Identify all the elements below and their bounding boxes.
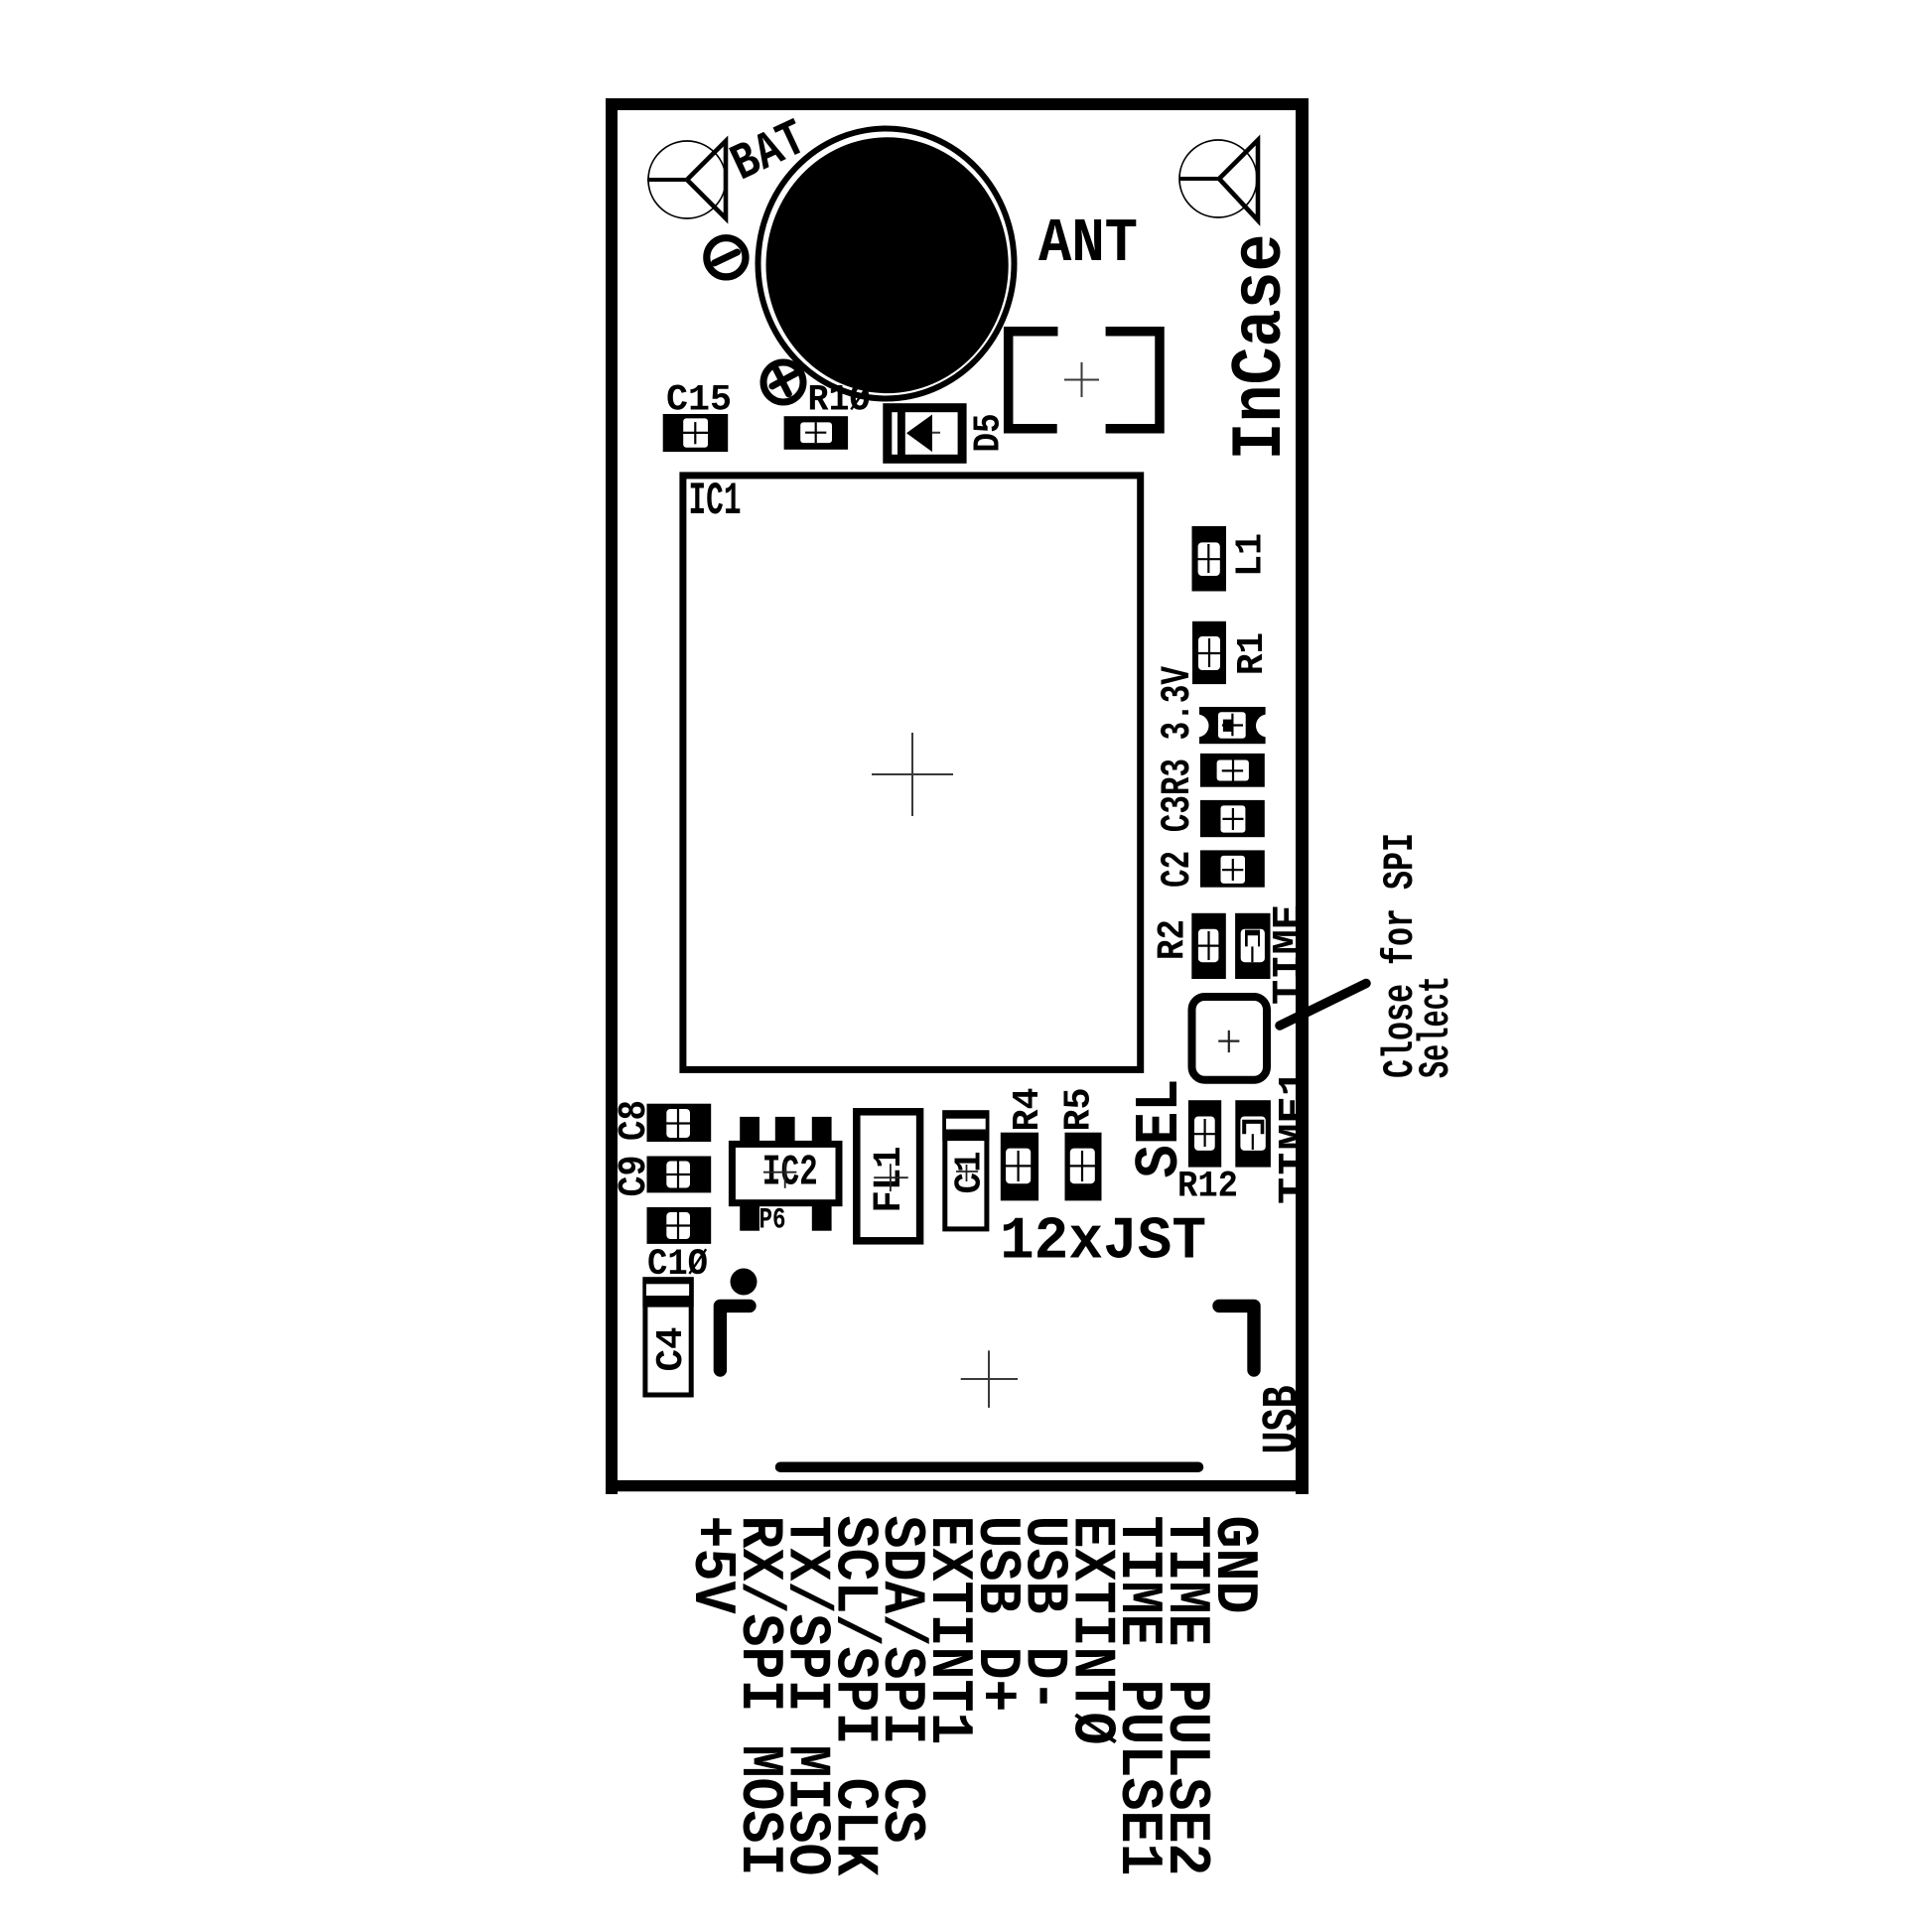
svg-text:L1: L1 (1230, 533, 1273, 577)
svg-text:USB: USB (1256, 1386, 1312, 1454)
svg-text:C4: C4 (650, 1327, 693, 1372)
svg-text:GND: GND (1199, 1516, 1267, 1614)
svg-text:D5: D5 (968, 414, 1011, 453)
svg-text:IC1: IC1 (689, 476, 742, 527)
svg-text:R5: R5 (1058, 1088, 1101, 1132)
svg-text:R12: R12 (1177, 1167, 1238, 1208)
svg-text:R1: R1 (1231, 632, 1274, 675)
svg-text:C2 C3R3 3.3V: C2 C3R3 3.3V (1154, 665, 1201, 888)
svg-text:C1: C1 (949, 1152, 992, 1194)
svg-text:R4: R4 (1007, 1088, 1049, 1132)
svg-text:SEL: SEL (1125, 1079, 1195, 1178)
svg-text:R2: R2 (1152, 919, 1195, 960)
svg-text:TIME: TIME (1266, 904, 1313, 1005)
svg-text:P6: P6 (759, 1203, 786, 1237)
svg-text:R1Ø: R1Ø (808, 380, 871, 422)
svg-text:ANT: ANT (1038, 208, 1138, 279)
svg-text:12xJST: 12xJST (1000, 1209, 1206, 1277)
svg-text:TIME1: TIME1 (1272, 1069, 1319, 1204)
svg-text:Select: Select (1412, 976, 1461, 1078)
svg-text:InCase: InCase (1220, 234, 1302, 461)
